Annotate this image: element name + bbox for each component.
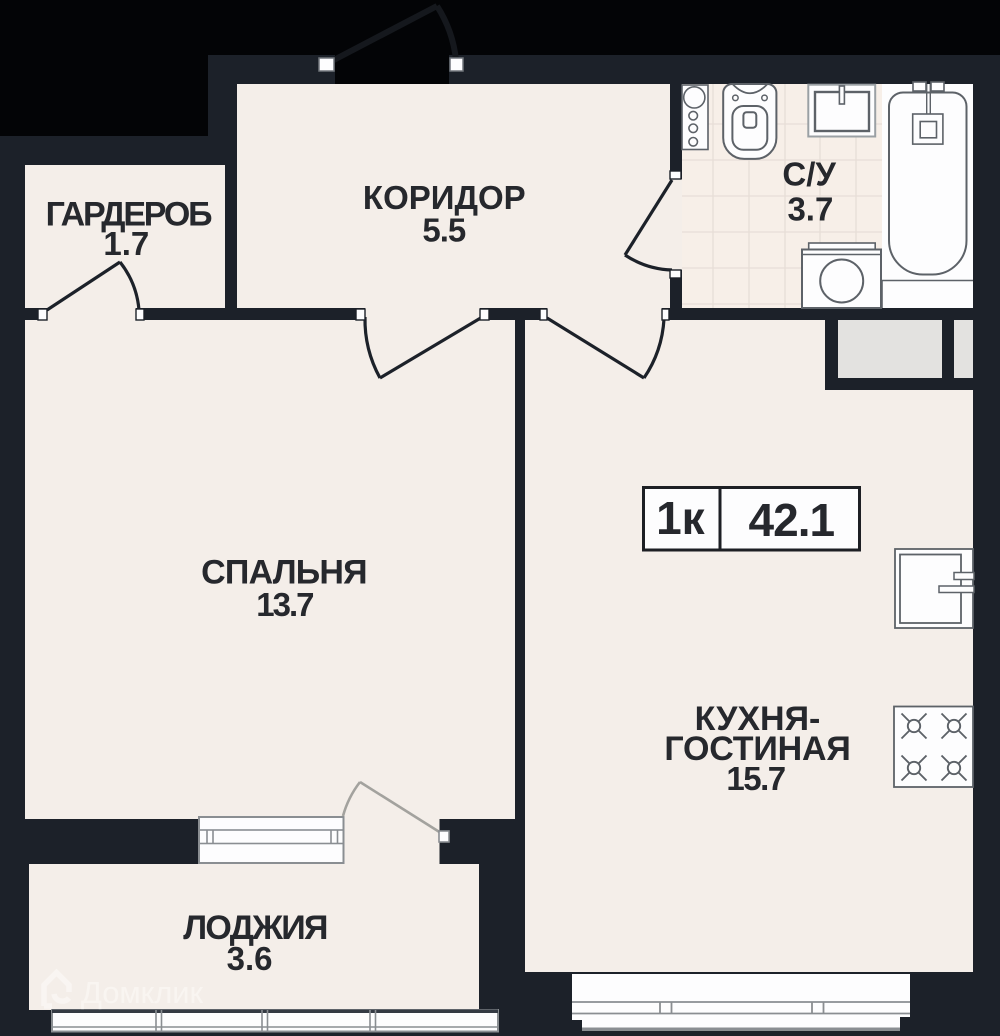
- svg-text:42.1: 42.1: [749, 494, 835, 546]
- svg-text:3.7: 3.7: [787, 191, 833, 228]
- svg-text:1.7: 1.7: [103, 225, 149, 262]
- svg-text:Домклик: Домклик: [81, 975, 203, 1010]
- svg-text:КОРИДОР: КОРИДОР: [363, 179, 526, 216]
- svg-text:1к: 1к: [656, 492, 706, 544]
- svg-text:3.6: 3.6: [227, 940, 273, 977]
- svg-text:С/У: С/У: [782, 156, 836, 193]
- svg-text:15.7: 15.7: [726, 760, 784, 797]
- svg-text:5.5: 5.5: [422, 212, 466, 249]
- svg-text:13.7: 13.7: [256, 586, 313, 623]
